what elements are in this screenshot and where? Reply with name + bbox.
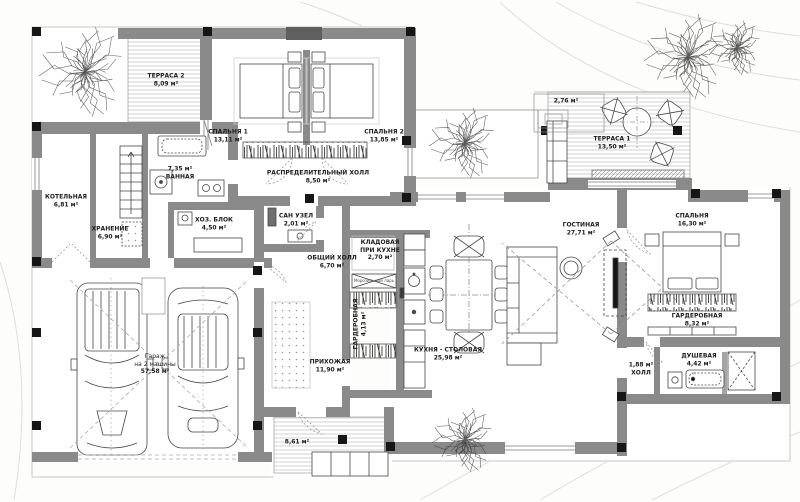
shower-sink [668, 372, 682, 388]
bathroom-sink [198, 180, 224, 196]
porch-steps [312, 452, 388, 476]
floor-plan-canvas: ТЕРРАСА 28,09 м² СПАЛЬНЯ 113,11 м² СПАЛЬ… [0, 0, 800, 502]
car-suv [71, 283, 153, 455]
closet-strip-top [350, 292, 396, 308]
bed-1 [234, 58, 306, 124]
hallway-mat [272, 302, 310, 388]
closet-strip-bottom [350, 344, 396, 358]
wardrobe-strip-bedroom3 [648, 294, 736, 311]
garage-equipment-box [142, 278, 165, 314]
terrace-2-deck [128, 36, 202, 122]
kitchen-counter [400, 234, 425, 388]
closet-doors-row [648, 327, 736, 335]
bed-2 [307, 58, 379, 124]
bathtub-main [158, 136, 206, 156]
wardrobe-strip-bedrooms [243, 142, 367, 158]
shower-cabin [728, 352, 755, 390]
terrace-bench [547, 121, 567, 183]
freezer-chest [352, 274, 396, 288]
floor-plan-drawing [0, 0, 800, 502]
bathtub-2 [686, 370, 724, 388]
washing-machine [150, 170, 172, 194]
